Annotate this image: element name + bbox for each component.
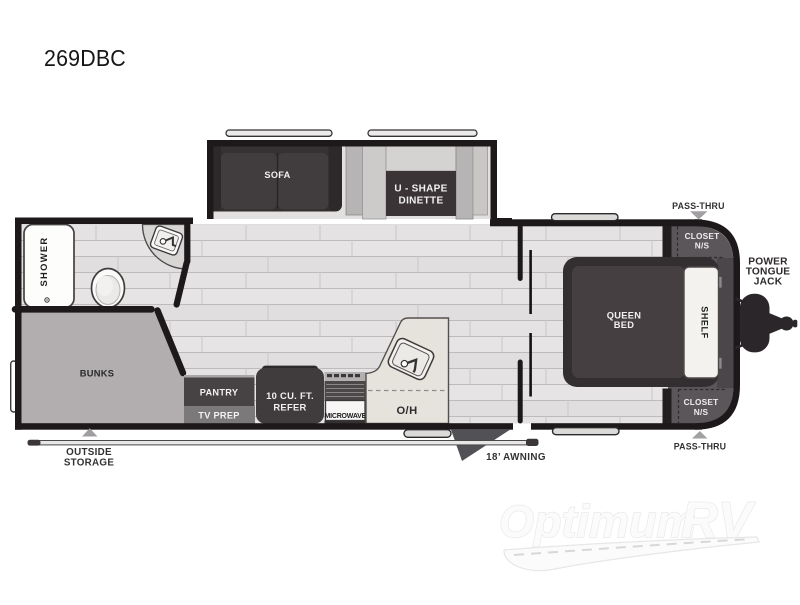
svg-text:269DBC: 269DBC <box>44 45 126 71</box>
svg-text:O/H: O/H <box>396 405 417 417</box>
svg-text:OUTSIDE: OUTSIDE <box>66 447 112 458</box>
svg-text:N/S: N/S <box>695 241 710 251</box>
svg-text:QUEEN: QUEEN <box>607 311 642 321</box>
svg-text:SHELF: SHELF <box>700 306 710 339</box>
svg-text:JACK: JACK <box>754 277 783 288</box>
svg-text:SHOWER: SHOWER <box>38 237 49 287</box>
svg-text:18’ AWNING: 18’ AWNING <box>486 452 546 463</box>
svg-text:U - SHAPE: U - SHAPE <box>394 184 447 195</box>
svg-text:PANTRY: PANTRY <box>200 388 239 398</box>
svg-text:BED: BED <box>614 320 635 330</box>
svg-text:Optimum: Optimum <box>499 496 697 547</box>
svg-text:PASS-THRU: PASS-THRU <box>672 201 724 211</box>
svg-text:N/S: N/S <box>694 407 709 417</box>
svg-text:REFER: REFER <box>273 402 306 413</box>
svg-text:CLOSET: CLOSET <box>684 397 719 407</box>
svg-text:STORAGE: STORAGE <box>64 458 115 469</box>
svg-text:SOFA: SOFA <box>264 170 290 180</box>
svg-text:PASS-THRU: PASS-THRU <box>674 442 726 452</box>
svg-text:BUNKS: BUNKS <box>80 369 115 379</box>
svg-text:TV PREP: TV PREP <box>198 411 239 421</box>
svg-text:DINETTE: DINETTE <box>399 196 444 207</box>
svg-text:CLOSET: CLOSET <box>685 231 720 241</box>
svg-text:10 CU. FT.: 10 CU. FT. <box>266 390 314 401</box>
svg-text:MICROWAVE: MICROWAVE <box>324 413 366 420</box>
